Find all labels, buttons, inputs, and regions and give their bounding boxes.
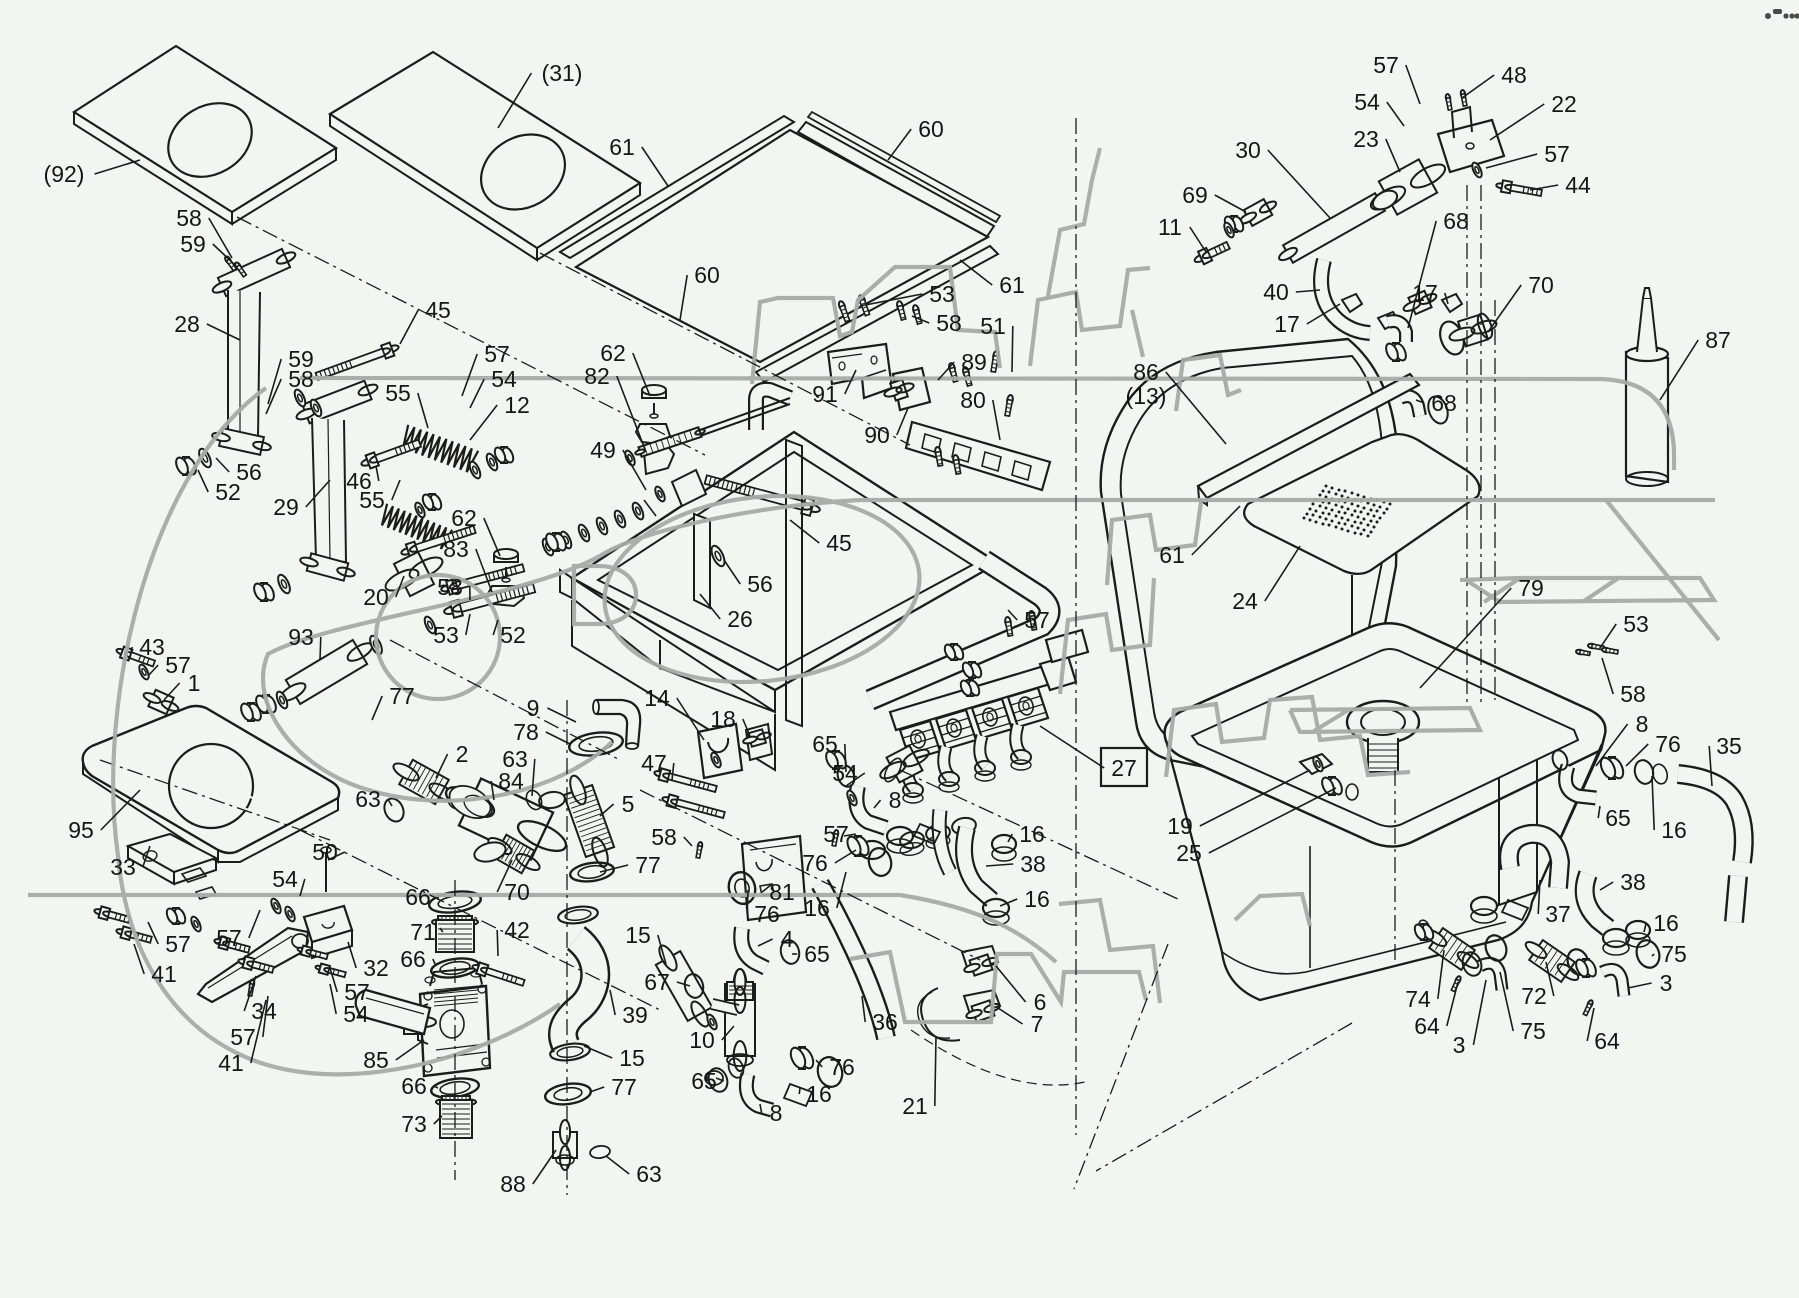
svg-text:30: 30 — [1235, 137, 1261, 163]
svg-text:41: 41 — [151, 961, 177, 987]
svg-text:42: 42 — [504, 917, 530, 943]
svg-text:39: 39 — [622, 1002, 648, 1028]
svg-text:62: 62 — [451, 505, 477, 531]
svg-text:54: 54 — [343, 1001, 369, 1027]
svg-text:86: 86 — [1133, 359, 1159, 385]
svg-text:93: 93 — [288, 624, 314, 650]
svg-text:48: 48 — [1501, 62, 1527, 88]
svg-text:29: 29 — [273, 494, 299, 520]
svg-text:57: 57 — [165, 931, 191, 957]
svg-text:57: 57 — [1544, 141, 1570, 167]
svg-text:64: 64 — [1594, 1028, 1620, 1054]
svg-text:54: 54 — [491, 366, 517, 392]
svg-text:3: 3 — [1660, 970, 1673, 996]
svg-text:40: 40 — [1263, 279, 1289, 305]
svg-text:59: 59 — [180, 231, 206, 257]
svg-text:65: 65 — [691, 1068, 717, 1094]
svg-text:45: 45 — [425, 297, 451, 323]
svg-text:38: 38 — [1020, 851, 1046, 877]
svg-text:28: 28 — [174, 311, 200, 337]
svg-text:55: 55 — [359, 487, 385, 513]
svg-text:84: 84 — [498, 768, 524, 794]
svg-text:71: 71 — [410, 919, 436, 945]
svg-text:60: 60 — [918, 116, 944, 142]
svg-text:83: 83 — [443, 536, 469, 562]
svg-text:23: 23 — [1353, 126, 1379, 152]
svg-text:67: 67 — [644, 969, 670, 995]
svg-text:9: 9 — [527, 695, 540, 721]
svg-text:14: 14 — [644, 685, 670, 711]
svg-text:78: 78 — [513, 719, 539, 745]
svg-text:54: 54 — [832, 760, 858, 786]
svg-text:15: 15 — [625, 922, 651, 948]
svg-text:63: 63 — [636, 1161, 662, 1187]
svg-text:21: 21 — [902, 1093, 928, 1119]
svg-text:54: 54 — [1354, 89, 1380, 115]
svg-text:17: 17 — [1274, 311, 1300, 337]
svg-text:80: 80 — [960, 387, 986, 413]
svg-text:17: 17 — [1412, 280, 1438, 306]
svg-text:58: 58 — [288, 366, 314, 392]
svg-text:53: 53 — [433, 622, 459, 648]
svg-text:76: 76 — [754, 901, 780, 927]
svg-text:16: 16 — [1661, 817, 1687, 843]
svg-text:(13): (13) — [1126, 383, 1167, 409]
svg-text:61: 61 — [999, 272, 1025, 298]
svg-text:44: 44 — [1565, 172, 1591, 198]
svg-text:35: 35 — [1716, 733, 1742, 759]
svg-text:64: 64 — [1414, 1013, 1440, 1039]
svg-text:58: 58 — [651, 824, 677, 850]
svg-text:87: 87 — [1705, 327, 1731, 353]
svg-text:47: 47 — [641, 750, 667, 776]
svg-text:11: 11 — [1158, 214, 1182, 240]
svg-text:61: 61 — [609, 134, 635, 160]
svg-text:88: 88 — [500, 1171, 526, 1197]
svg-text:58: 58 — [437, 574, 463, 600]
svg-text:63: 63 — [355, 786, 381, 812]
svg-text:90: 90 — [864, 422, 890, 448]
svg-text:24: 24 — [1232, 588, 1258, 614]
svg-text:8: 8 — [770, 1100, 783, 1126]
svg-text:57: 57 — [230, 1024, 256, 1050]
svg-text:77: 77 — [611, 1074, 637, 1100]
svg-text:79: 79 — [1518, 575, 1544, 601]
svg-text:70: 70 — [1528, 272, 1554, 298]
svg-text:53: 53 — [929, 281, 955, 307]
svg-text:91: 91 — [812, 381, 838, 407]
svg-text:57: 57 — [216, 925, 242, 951]
svg-text:75: 75 — [1661, 941, 1687, 967]
svg-text:53: 53 — [1623, 611, 1649, 637]
svg-text:61: 61 — [1159, 542, 1185, 568]
svg-text:19: 19 — [1167, 813, 1193, 839]
svg-text:43: 43 — [139, 634, 165, 660]
svg-text:16: 16 — [804, 895, 830, 921]
svg-text:69: 69 — [1182, 182, 1208, 208]
svg-text:25: 25 — [1176, 840, 1202, 866]
svg-text:66: 66 — [400, 946, 426, 972]
svg-text:52: 52 — [500, 622, 526, 648]
svg-text:85: 85 — [363, 1047, 389, 1073]
svg-text:51: 51 — [980, 313, 1006, 339]
svg-text:36: 36 — [872, 1009, 898, 1035]
svg-text:(92): (92) — [44, 161, 85, 187]
svg-text:49: 49 — [590, 437, 616, 463]
svg-text:12: 12 — [504, 392, 530, 418]
svg-text:65: 65 — [812, 731, 838, 757]
svg-text:66: 66 — [405, 884, 431, 910]
svg-text:16: 16 — [806, 1081, 832, 1107]
svg-text:58: 58 — [176, 205, 202, 231]
svg-text:8: 8 — [1636, 711, 1649, 737]
svg-text:45: 45 — [826, 530, 852, 556]
svg-text:57: 57 — [1024, 607, 1050, 633]
svg-text:27: 27 — [1111, 755, 1137, 781]
svg-text:16: 16 — [1019, 821, 1045, 847]
svg-text:57: 57 — [484, 341, 510, 367]
svg-text:22: 22 — [1551, 91, 1577, 117]
svg-text:5: 5 — [622, 791, 635, 817]
svg-text:56: 56 — [747, 571, 773, 597]
svg-text:76: 76 — [1655, 731, 1681, 757]
svg-text:68: 68 — [1431, 390, 1457, 416]
svg-text:60: 60 — [694, 262, 720, 288]
svg-text:77: 77 — [635, 852, 661, 878]
svg-text:89: 89 — [961, 349, 987, 375]
svg-text:65: 65 — [1605, 805, 1631, 831]
svg-text:74: 74 — [1405, 986, 1431, 1012]
svg-text:57: 57 — [823, 821, 849, 847]
svg-text:15: 15 — [619, 1045, 645, 1071]
svg-text:76: 76 — [829, 1054, 855, 1080]
svg-text:1: 1 — [188, 670, 201, 696]
svg-text:82: 82 — [584, 363, 610, 389]
svg-text:95: 95 — [68, 817, 94, 843]
svg-text:2: 2 — [456, 741, 469, 767]
svg-text:41: 41 — [218, 1050, 244, 1076]
svg-text:55: 55 — [385, 380, 411, 406]
svg-text:57: 57 — [1373, 52, 1399, 78]
svg-text:77: 77 — [389, 683, 415, 709]
svg-text:72: 72 — [1521, 983, 1547, 1009]
svg-text:58: 58 — [936, 310, 962, 336]
svg-text:54: 54 — [272, 866, 298, 892]
svg-text:8: 8 — [889, 787, 902, 813]
svg-text:20: 20 — [363, 584, 389, 610]
svg-text:52: 52 — [215, 479, 241, 505]
svg-text:76: 76 — [802, 850, 828, 876]
svg-text:16: 16 — [1024, 886, 1050, 912]
svg-text:3: 3 — [1453, 1032, 1466, 1058]
svg-text:38: 38 — [1620, 869, 1646, 895]
svg-text:32: 32 — [363, 955, 389, 981]
svg-text:10: 10 — [689, 1027, 715, 1053]
svg-text:70: 70 — [504, 879, 530, 905]
svg-text:16: 16 — [1653, 910, 1679, 936]
svg-text:33: 33 — [110, 854, 136, 880]
svg-text:26: 26 — [727, 606, 753, 632]
svg-text:7: 7 — [1031, 1011, 1044, 1037]
svg-text:66: 66 — [401, 1073, 427, 1099]
svg-text:37: 37 — [1545, 901, 1571, 927]
svg-text:68: 68 — [1443, 208, 1469, 234]
svg-text:18: 18 — [710, 706, 736, 732]
svg-text:58: 58 — [1620, 681, 1646, 707]
svg-text:4: 4 — [781, 926, 794, 952]
svg-text:75: 75 — [1520, 1018, 1546, 1044]
svg-text:(31): (31) — [542, 60, 583, 86]
svg-text:73: 73 — [401, 1111, 427, 1137]
svg-text:50: 50 — [312, 839, 338, 865]
svg-text:65: 65 — [804, 941, 830, 967]
